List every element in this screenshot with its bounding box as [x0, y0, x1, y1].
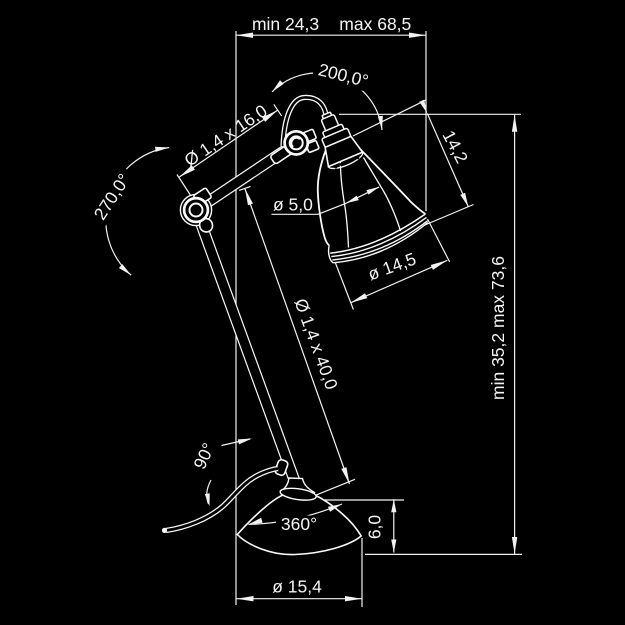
svg-text:360°: 360° [281, 514, 317, 534]
svg-text:min 24,3: min 24,3 [252, 14, 319, 34]
svg-text:ø 15,4: ø 15,4 [272, 577, 322, 597]
svg-text:ø 5,0: ø 5,0 [273, 195, 313, 215]
svg-text:max 68,5: max 68,5 [339, 14, 411, 34]
svg-text:6,0: 6,0 [365, 515, 385, 540]
svg-text:min 35,2 max 73,6: min 35,2 max 73,6 [488, 256, 508, 400]
